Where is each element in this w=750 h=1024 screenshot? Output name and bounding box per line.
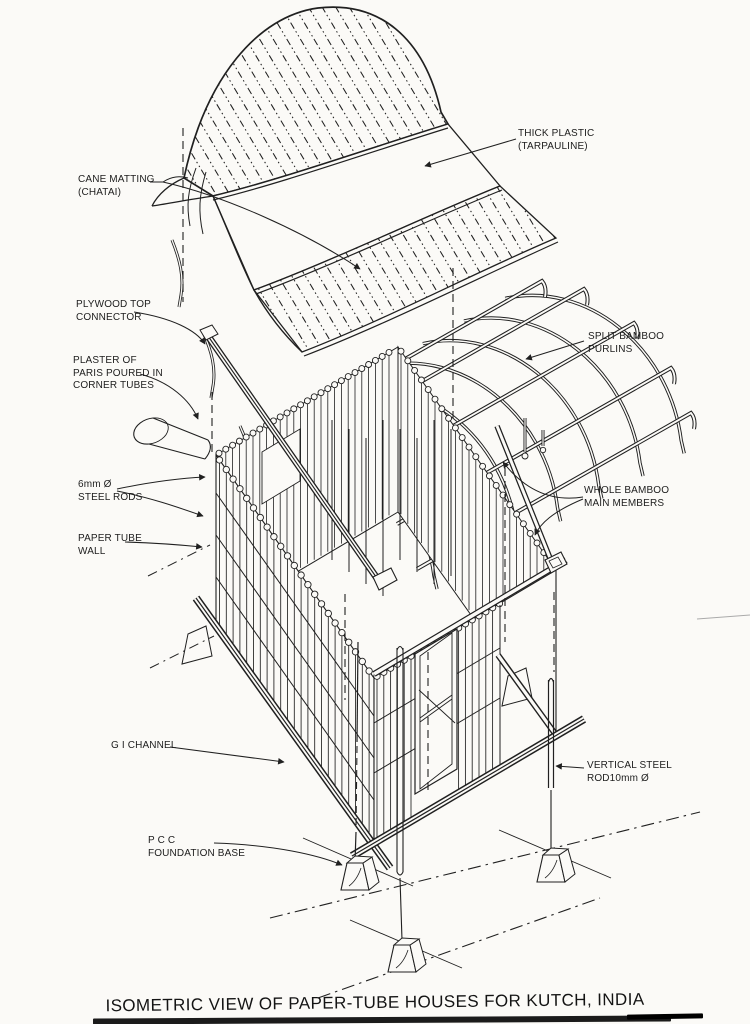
label-thick-plastic: THICK PLASTIC (TARPAULINE): [518, 128, 594, 153]
label-plaster-of-paris: PLASTER OF PARIS POURED IN CORNER TUBES: [73, 355, 163, 393]
scanned-drawing-page: CANE MATTING (CHATAI) THICK PLASTIC (TAR…: [0, 0, 750, 1024]
label-steel-rods-6mm: 6mm Ø STEEL RODS: [78, 479, 142, 504]
label-pcc-foundation-base: P C C FOUNDATION BASE: [148, 835, 245, 860]
label-whole-bamboo-main-members: WHOLE BAMBOO MAIN MEMBERS: [584, 485, 669, 510]
label-cane-matting: CANE MATTING (CHATAI): [78, 174, 155, 199]
label-gi-channel: G I CHANNEL: [111, 740, 177, 753]
label-split-bamboo-purlins: SPLIT BAMBOO PURLINS: [588, 331, 664, 356]
isometric-drawing: [0, 0, 750, 1024]
label-paper-tube-wall: PAPER TUBE WALL: [78, 533, 142, 558]
label-vertical-steel-rod: VERTICAL STEEL ROD10mm Ø: [587, 760, 672, 785]
label-plywood-top-connector: PLYWOOD TOP CONNECTOR: [76, 299, 151, 324]
